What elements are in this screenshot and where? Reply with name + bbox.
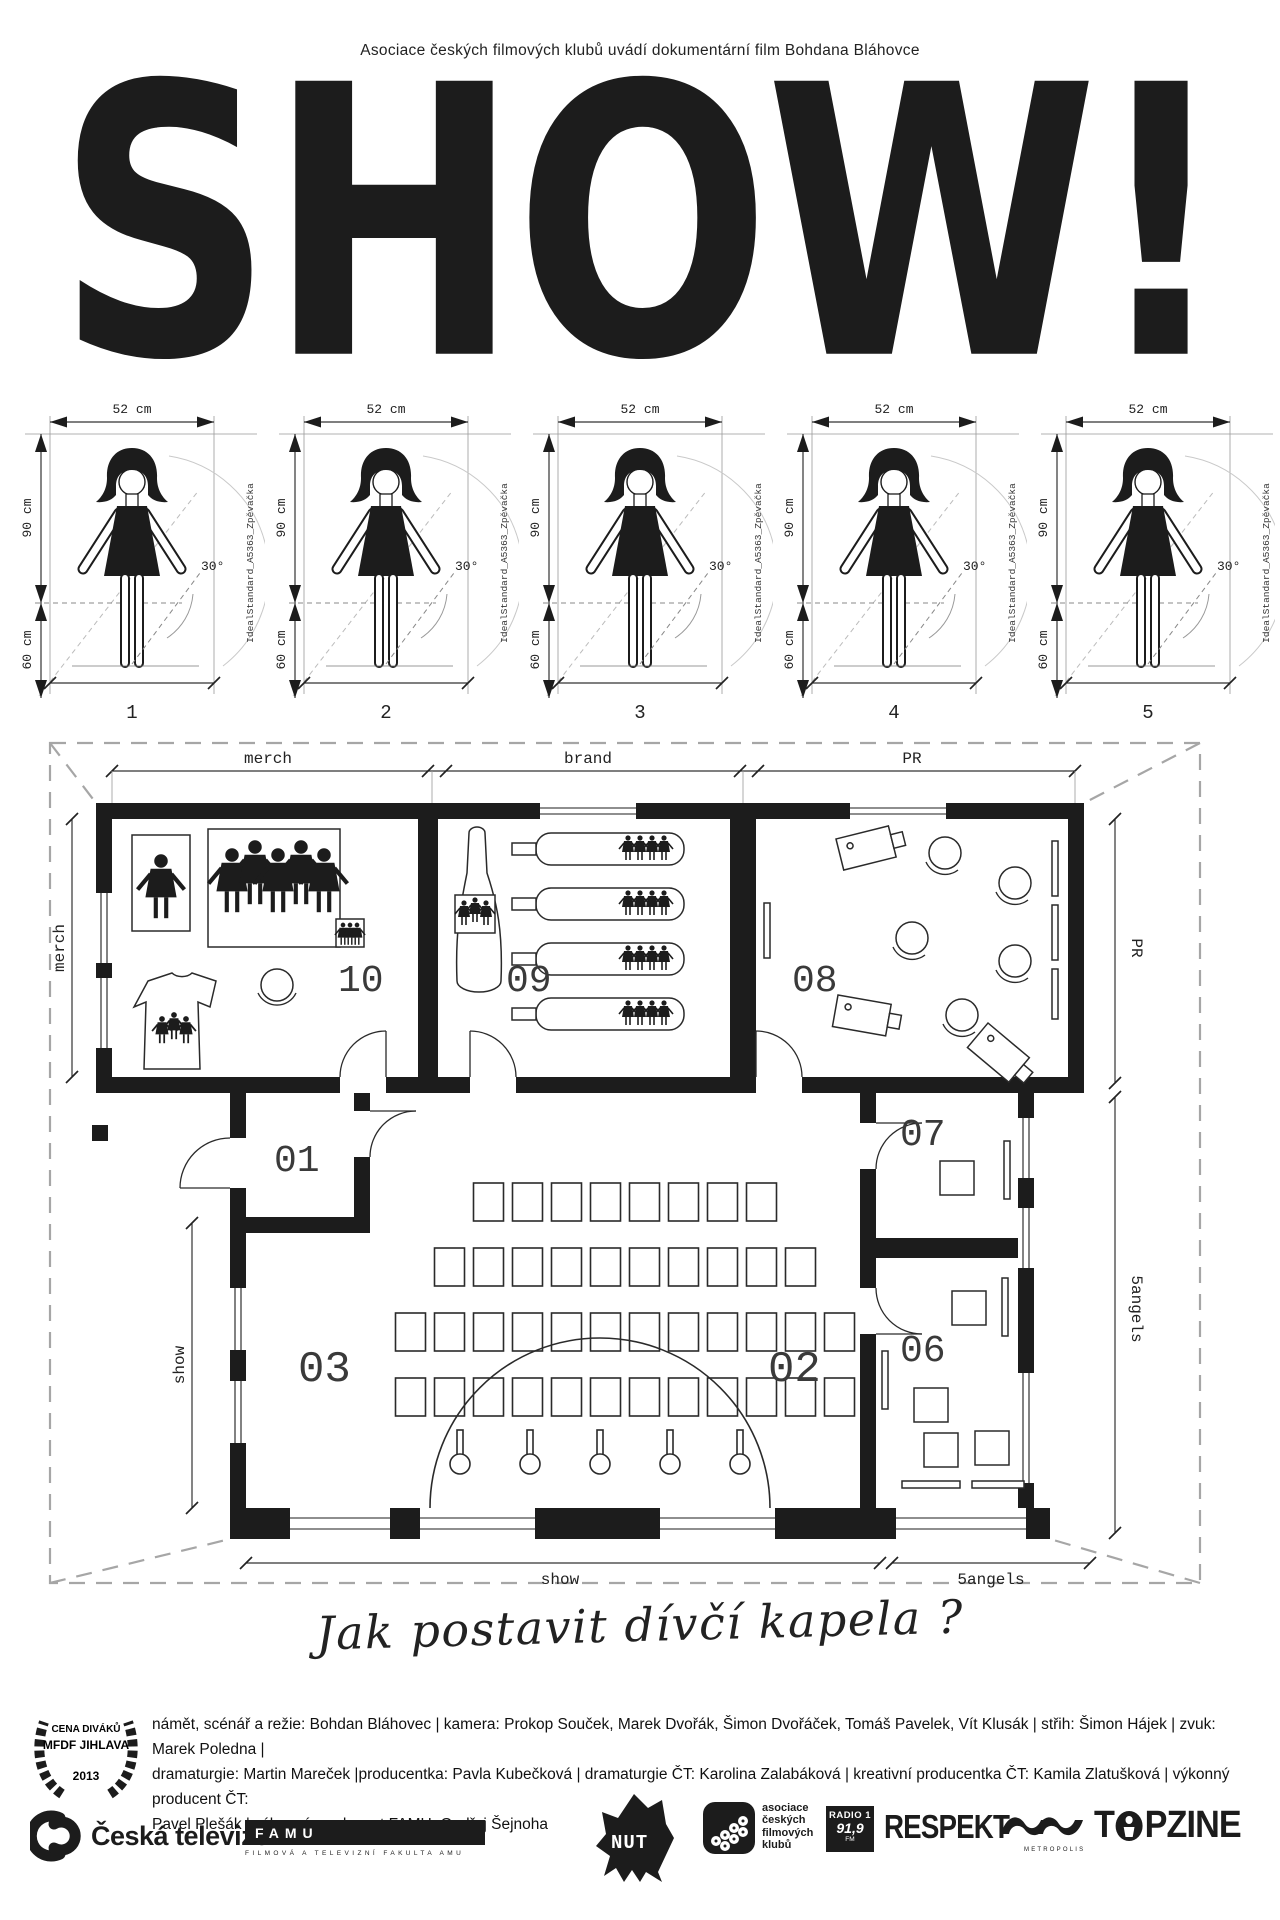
metropolis-icon	[999, 1808, 1085, 1840]
topzine-right: PZINE	[1145, 1804, 1241, 1847]
award-laurel-badge: CENA DIVÁKŮ MFDF JIHLAVA 2013	[32, 1692, 140, 1804]
room-label-09: 09	[506, 960, 552, 1003]
dim-bottom-5angels: 5angels	[957, 1571, 1024, 1589]
dim-top-pr: PR	[902, 750, 922, 768]
figure-number-2: 2	[380, 702, 391, 724]
figure-diagram-1	[20, 402, 269, 698]
acfk-logo: asociace českých filmových klubů	[703, 1802, 813, 1854]
famu-subtitle: FILMOVÁ A TELEVIZNÍ FAKULTA AMU	[245, 1850, 485, 1857]
poster-title: SHOW!	[56, 39, 1224, 413]
award-line3: 2013	[73, 1769, 100, 1783]
room-label-08: 08	[792, 960, 838, 1003]
nut-logo: NUT	[596, 1794, 674, 1887]
topzine-left: T	[1094, 1804, 1114, 1847]
floorplan: merch brand PR merch show PR 5angels sho…	[40, 733, 1240, 1595]
award-line2: MFDF JIHLAVA	[43, 1738, 130, 1752]
dim-right-5angels: 5angels	[1127, 1275, 1145, 1342]
room-brand-furniture	[455, 827, 684, 1030]
metropolis-wordmark: METROPOLIS	[998, 1847, 1085, 1853]
award-line1: CENA DIVÁKŮ	[51, 1721, 120, 1735]
stage-arc	[430, 1338, 770, 1508]
radio1-logo: RADIO 1 91,9 FM	[826, 1806, 874, 1852]
figure-diagram-5	[1036, 402, 1275, 698]
respekt-logo: RESPEKT	[884, 1808, 1009, 1846]
dim-top-brand: brand	[564, 750, 612, 768]
radio1-band: FM	[826, 1836, 874, 1843]
figure-diagram-4	[782, 402, 1031, 698]
figure-diagram-3	[528, 402, 777, 698]
famu-wordmark: FAMU	[245, 1820, 485, 1845]
ceska-televize-logo: Česká televize	[30, 1810, 269, 1862]
poster-title-wrap: SHOW!	[0, 70, 1280, 382]
partner-logos-row: Česká televize FAMU FILMOVÁ A TELEVIZNÍ …	[0, 1800, 1280, 1900]
acfk-icon	[703, 1802, 755, 1854]
room-label-02: 02	[768, 1345, 821, 1395]
figure-number-1: 1	[126, 702, 137, 724]
room-label-03: 03	[298, 1345, 351, 1395]
acfk-line-4: klubů	[762, 1839, 813, 1851]
room-label-06: 06	[900, 1330, 946, 1373]
acfk-line-3: filmových	[762, 1827, 813, 1839]
famu-logo: FAMU FILMOVÁ A TELEVIZNÍ FAKULTA AMU	[245, 1820, 485, 1857]
figure-diagram-2	[274, 402, 523, 698]
room-07-06-furniture	[882, 1141, 1024, 1488]
acfk-line-1: asociace	[762, 1802, 813, 1814]
dim-left-show: show	[171, 1345, 189, 1384]
dim-left-merch: merch	[51, 924, 69, 972]
acfk-line-2: českých	[762, 1814, 813, 1826]
ceska-televize-wordmark: Česká televize	[91, 1821, 269, 1852]
topzine-person-icon	[1115, 1810, 1144, 1842]
nut-wordmark: NUT	[611, 1832, 648, 1854]
figure-number-3: 3	[634, 702, 645, 724]
room-merch-furniture	[132, 829, 365, 1069]
dim-bottom-show: show	[541, 1571, 580, 1589]
ceska-televize-icon	[30, 1810, 82, 1862]
room-pr-furniture	[764, 823, 1058, 1090]
room-label-07: 07	[900, 1114, 946, 1157]
radio1-frequency: 91,9	[826, 1821, 874, 1836]
figure-diagram-band: 52 cm 90 cm 60 cm	[5, 398, 1275, 732]
stage-microphones	[450, 1430, 750, 1474]
figure-number-5: 5	[1142, 702, 1153, 724]
figure-number-4: 4	[888, 702, 899, 724]
dim-right-pr: PR	[1127, 938, 1145, 958]
dim-top-merch: merch	[244, 750, 292, 768]
room-label-10: 10	[338, 960, 384, 1003]
room-label-01: 01	[274, 1140, 320, 1183]
topzine-logo: T PZINE	[1094, 1804, 1241, 1847]
credits-line-1: námět, scénář a režie: Bohdan Bláhovec |…	[152, 1712, 1262, 1762]
metropolis-logo: METROPOLIS	[998, 1808, 1085, 1853]
